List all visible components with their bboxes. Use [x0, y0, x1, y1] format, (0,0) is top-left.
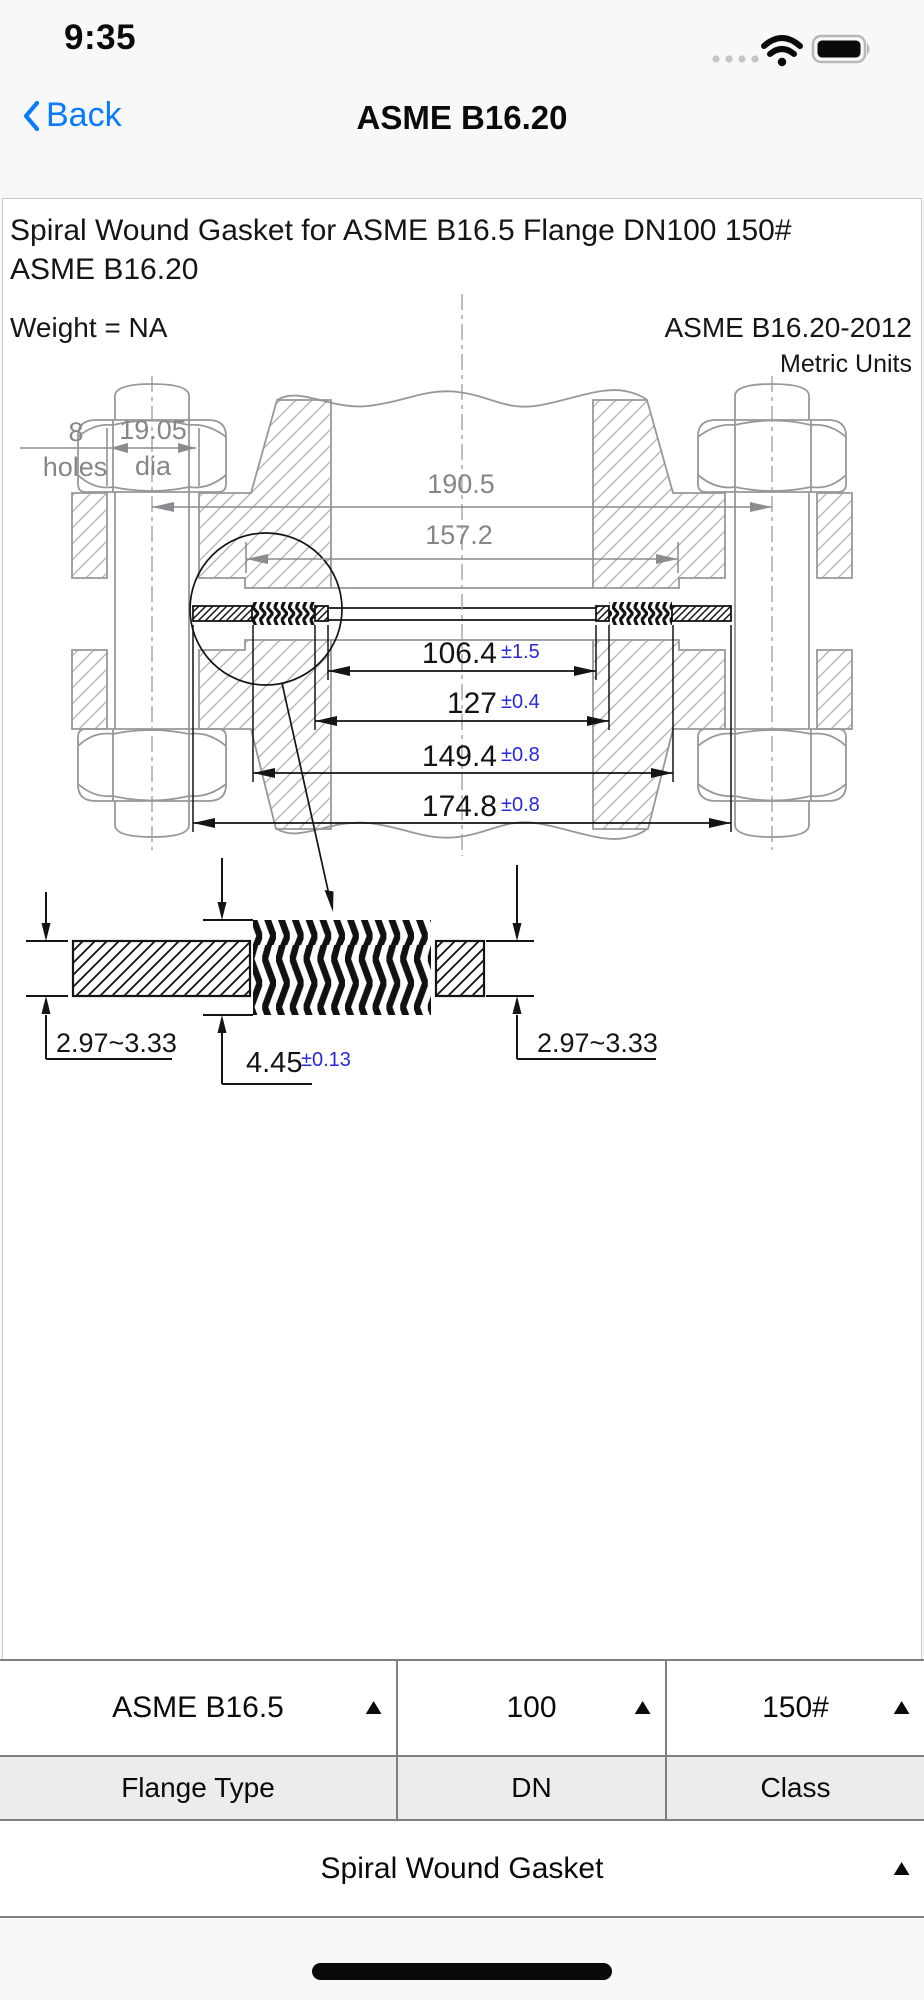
spiral-winding-detail	[253, 920, 431, 1015]
gasket-title: Spiral Wound Gasket for ASME B16.5 Flang…	[10, 211, 914, 289]
bolt-count: 8	[68, 417, 83, 447]
cellular-dots-icon	[712, 55, 758, 62]
wifi-icon	[764, 38, 800, 66]
flange-type-value: ASME B16.5	[112, 1691, 284, 1725]
spiral-thickness: 4.45	[246, 1047, 302, 1079]
dn-select[interactable]: 100 ▲	[398, 1661, 667, 1755]
gasket-type-value: Spiral Wound Gasket	[321, 1852, 604, 1886]
spiral-winding-right	[609, 602, 672, 625]
gasket-type-select[interactable]: Spiral Wound Gasket ▲	[0, 1821, 924, 1916]
page-title: ASME B16.20	[0, 99, 924, 137]
dim-winding-id-value: 127	[447, 687, 497, 720]
triangle-up-icon: ▲	[629, 1696, 656, 1718]
triangle-up-icon: ▲	[888, 1696, 915, 1718]
triangle-up-icon: ▲	[360, 1696, 387, 1718]
bolt-hole-dia-label: dia	[135, 451, 172, 481]
class-value: 150#	[762, 1691, 829, 1725]
outer-ring-thickness: 2.97~3.33	[56, 1028, 177, 1058]
dim-winding-od-value: 149.4	[422, 740, 497, 773]
inner-ring-detail	[436, 941, 484, 996]
dim-winding-id-tol: ±0.4	[501, 691, 540, 713]
gasket-detail-view: 2.97~3.33 4.45 ±0.13 2.97~3.33	[26, 858, 658, 1084]
outer-ring-detail	[73, 941, 250, 996]
flange-type-select[interactable]: ASME B16.5 ▲	[0, 1661, 398, 1755]
class-select[interactable]: 150# ▲	[667, 1661, 924, 1755]
dim-od-tol: ±0.8	[501, 794, 540, 816]
battery-icon	[813, 36, 870, 62]
dim-id-tol: ±1.5	[501, 641, 540, 663]
home-indicator[interactable]	[312, 1963, 612, 1980]
inner-ring-thickness: 2.97~3.33	[537, 1028, 658, 1058]
status-time: 9:35	[64, 18, 136, 58]
selection-picker: ASME B16.5 ▲ 100 ▲ 150# ▲ Flange Type DN…	[0, 1659, 924, 1918]
dim-id-value: 106.4	[422, 637, 497, 670]
flange-type-label: Flange Type	[0, 1757, 398, 1819]
gasket-title-line1: Spiral Wound Gasket for ASME B16.5 Flang…	[10, 211, 914, 250]
bolt-hole-dia: 19.05	[119, 415, 187, 445]
class-label: Class	[667, 1757, 924, 1819]
dn-value: 100	[506, 1691, 556, 1725]
dn-label: DN	[398, 1757, 667, 1819]
spiral-winding-left	[252, 602, 315, 625]
triangle-up-icon: ▲	[888, 1856, 915, 1878]
status-icons	[705, 28, 885, 72]
bolt-circle-dia: 190.5	[427, 469, 495, 499]
dim-od-value: 174.8	[422, 790, 497, 823]
dim-winding-od-tol: ±0.8	[501, 744, 540, 766]
bolt-count-label: holes	[43, 452, 108, 482]
spiral-thickness-tol: ±0.13	[301, 1049, 351, 1071]
gasket-technical-drawing: 8 holes 19.05 dia 190.5 157.2 106.4 ±1.5…	[0, 280, 924, 1090]
raised-face-dia: 157.2	[425, 520, 493, 550]
